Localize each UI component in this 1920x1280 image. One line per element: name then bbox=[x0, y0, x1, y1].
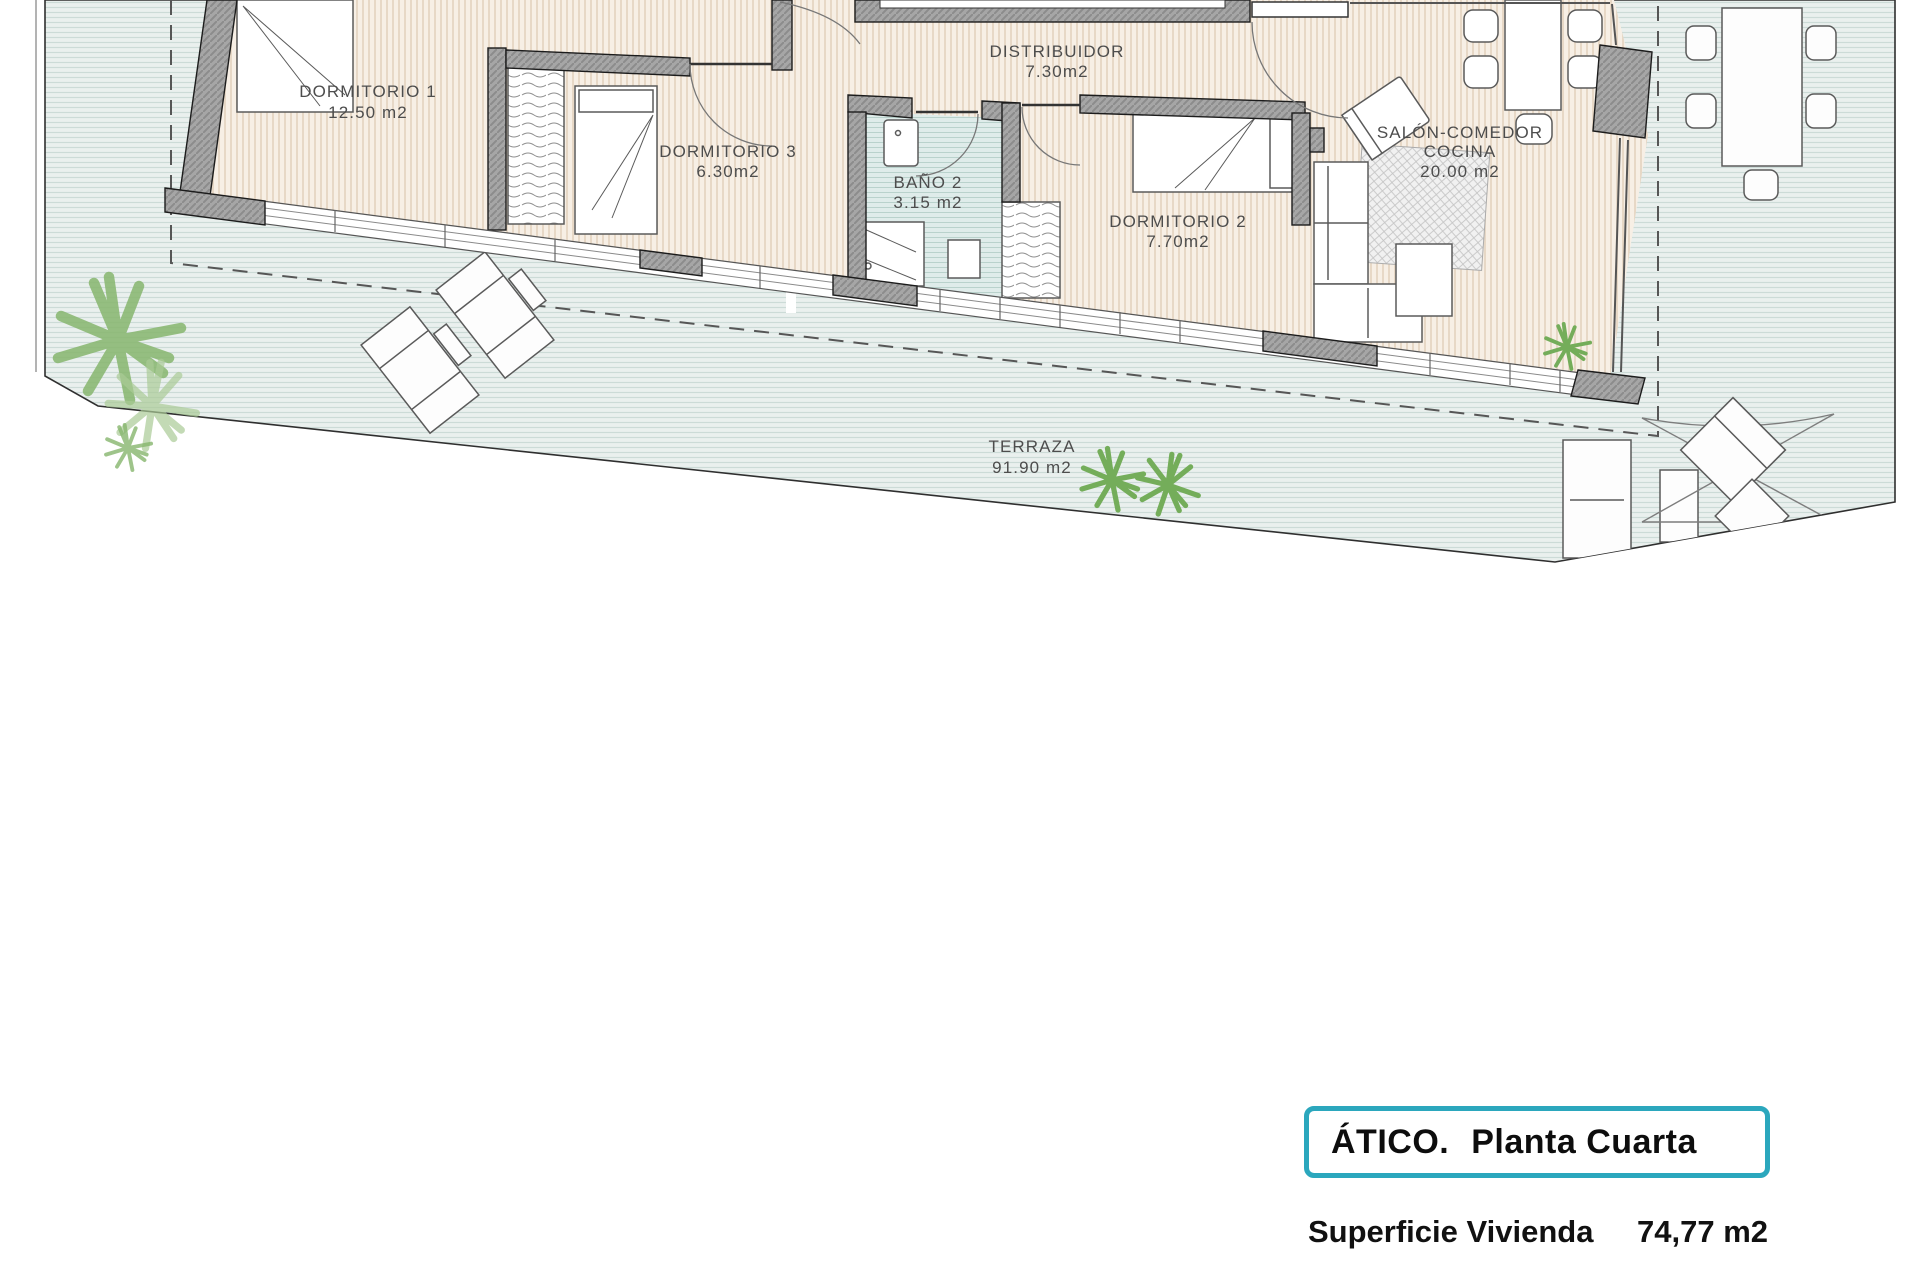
room-label-salon-line2: COCINA bbox=[1424, 142, 1497, 161]
wall-partition bbox=[1002, 103, 1020, 202]
room-area-dormitorio2: 7.70m2 bbox=[1146, 232, 1209, 251]
room-area-dormitorio1: 12.50 m2 bbox=[328, 103, 408, 122]
wardrobe bbox=[508, 62, 564, 224]
stair-void bbox=[880, 0, 1225, 8]
room-label-bano2: BAÑO 2 bbox=[894, 173, 963, 192]
room-label-salon-line1: SALÓN-COMEDOR bbox=[1377, 123, 1543, 142]
bed-single bbox=[575, 86, 657, 234]
room-label-dormitorio2: DORMITORIO 2 bbox=[1109, 212, 1247, 231]
outdoor-sofa bbox=[1563, 440, 1631, 558]
room-area-bano2: 3.15 m2 bbox=[893, 193, 962, 212]
bath-cabinet bbox=[948, 240, 980, 278]
wall-partition bbox=[1310, 128, 1324, 152]
outdoor-side-table bbox=[1660, 470, 1698, 542]
floor-plan-drawing: DORMITORIO 1 12.50 m2 DORMITORIO 3 6.30m… bbox=[0, 0, 1920, 1280]
surface-label: Superficie Vivienda bbox=[1304, 1214, 1593, 1250]
room-label-distribuidor: DISTRIBUIDOR bbox=[989, 42, 1124, 61]
room-area-salon: 20.00 m2 bbox=[1420, 162, 1500, 181]
wardrobe bbox=[1002, 202, 1060, 298]
room-label-terraza: TERRAZA bbox=[988, 437, 1075, 456]
wall-partition bbox=[488, 48, 506, 230]
toilet bbox=[884, 120, 918, 166]
room-area-terraza: 91.90 m2 bbox=[992, 458, 1072, 477]
coffee-table bbox=[1396, 244, 1452, 316]
floor-plan-page: DORMITORIO 1 12.50 m2 DORMITORIO 3 6.30m… bbox=[0, 0, 1920, 1280]
plan-title-box: ÁTICO. Planta Cuarta bbox=[1304, 1106, 1770, 1178]
plan-subtitle: Planta Cuarta bbox=[1471, 1123, 1697, 1162]
surface-value: 74,77 m2 bbox=[1637, 1214, 1770, 1250]
room-area-dormitorio3: 6.30m2 bbox=[696, 162, 759, 181]
wall-pillar bbox=[1593, 45, 1652, 138]
room-area-distribuidor: 7.30m2 bbox=[1025, 62, 1088, 81]
wall-partition bbox=[848, 112, 866, 280]
plan-title: ÁTICO. bbox=[1331, 1123, 1449, 1162]
room-label-dormitorio3: DORMITORIO 3 bbox=[659, 142, 797, 161]
surface-summary: Superficie Vivienda 74,77 m2 bbox=[1304, 1214, 1770, 1250]
bed-single bbox=[1133, 114, 1298, 192]
room-label-dormitorio1: DORMITORIO 1 bbox=[299, 82, 437, 101]
wall-partition bbox=[772, 0, 792, 70]
wall-partition bbox=[1292, 113, 1310, 225]
